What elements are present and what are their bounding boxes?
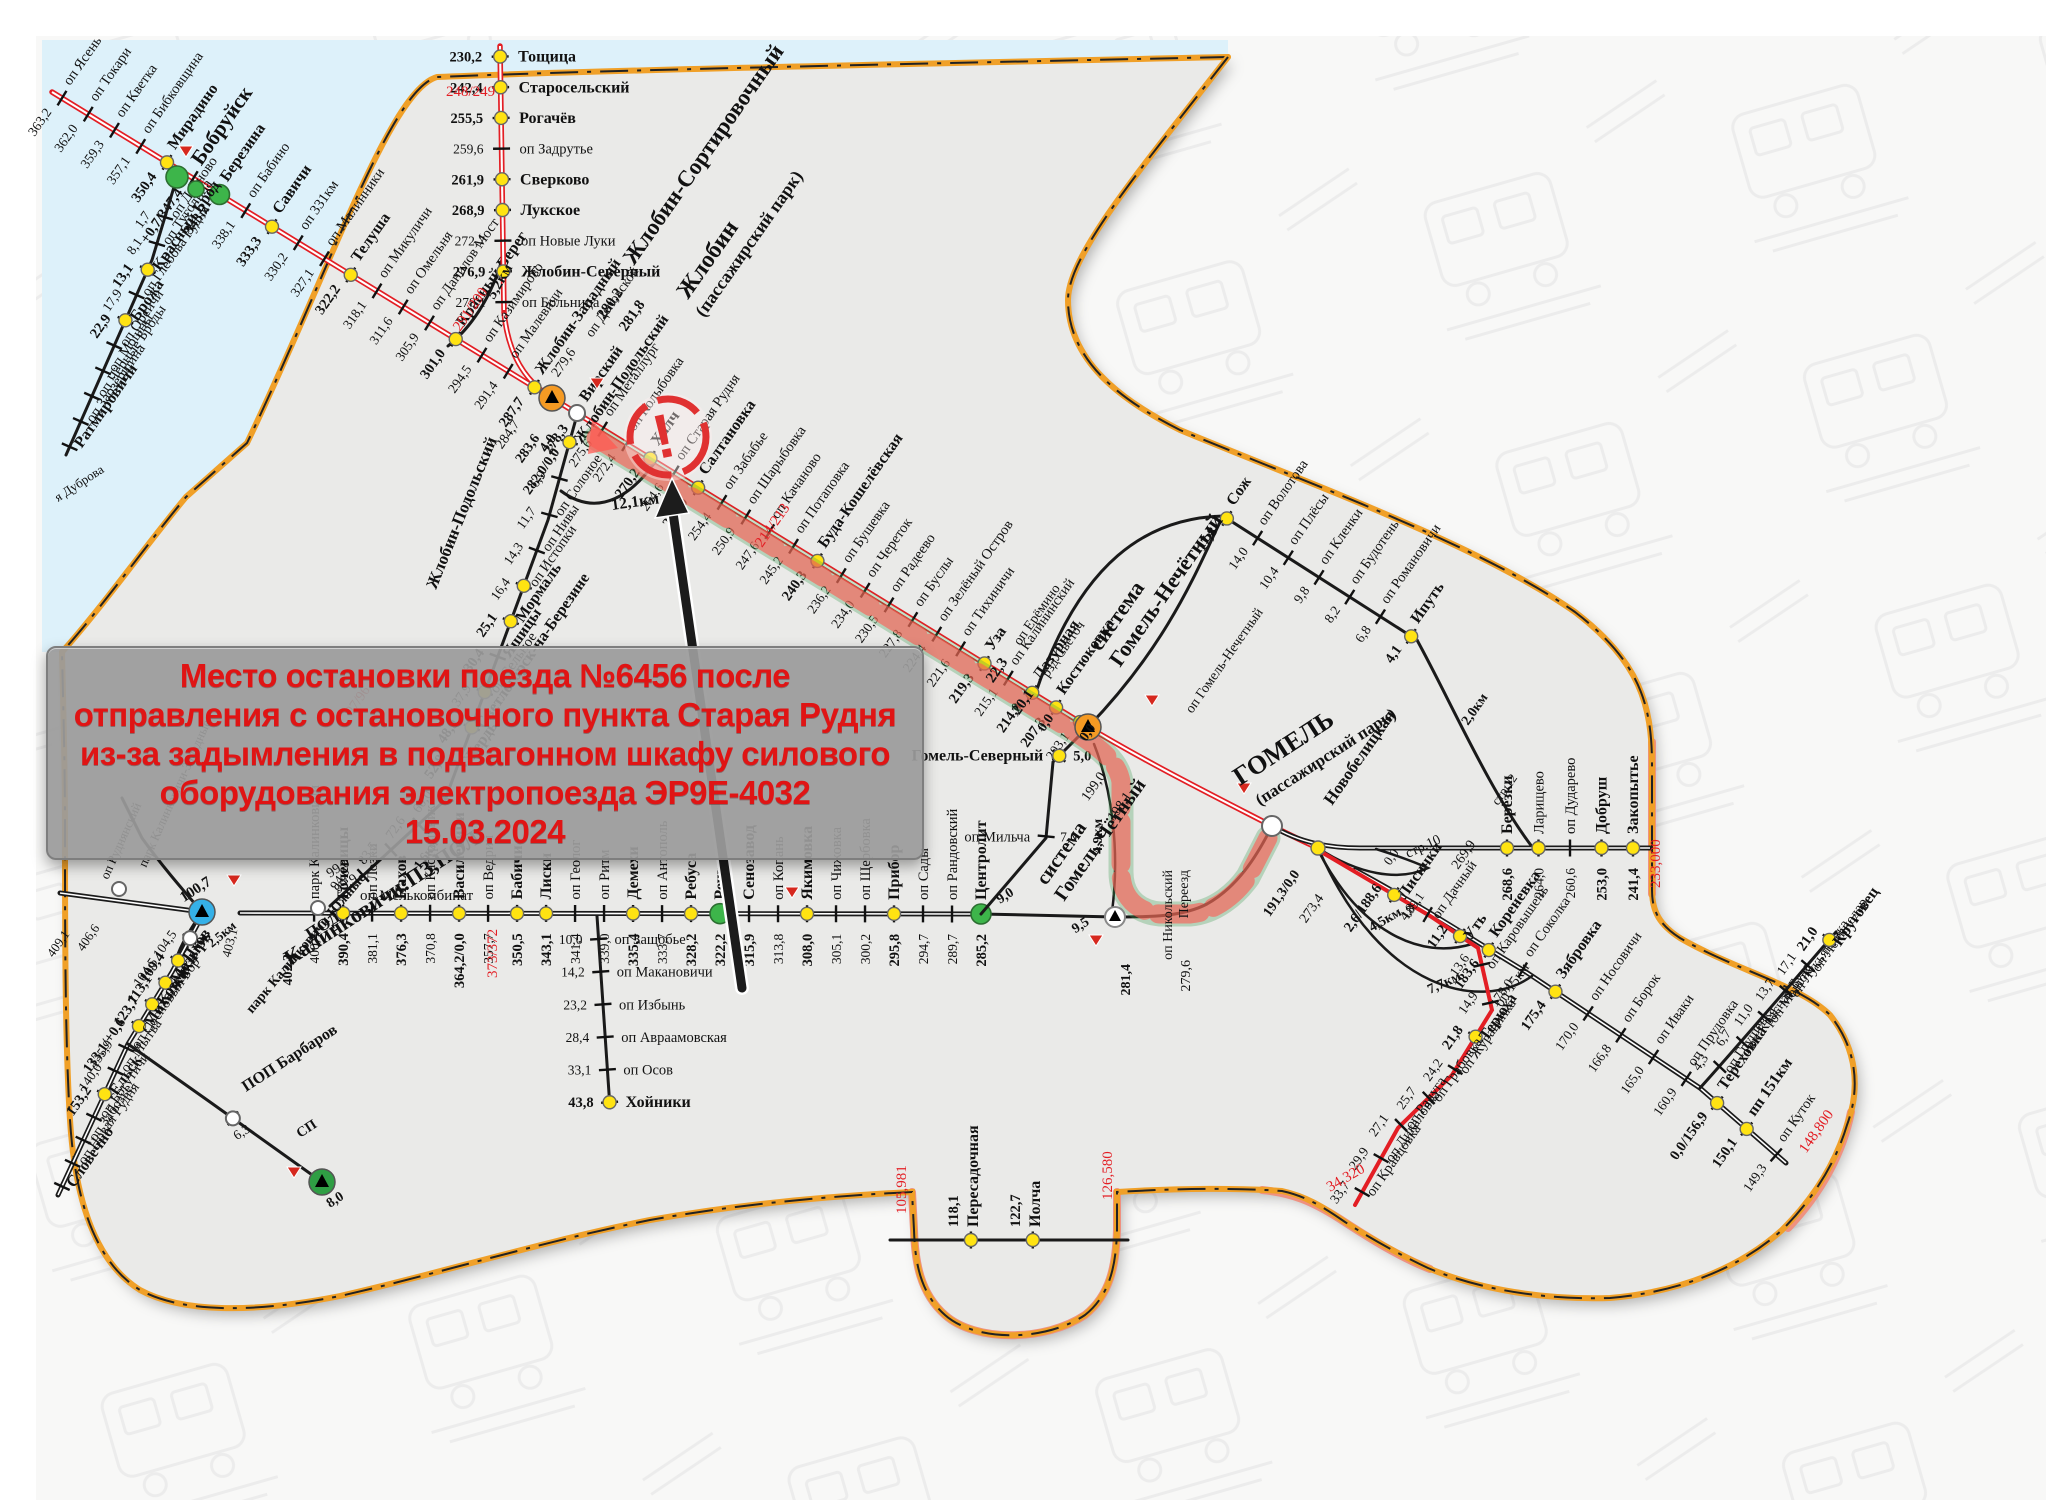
station-km: 253,0 (1595, 868, 1611, 901)
station-name: Иолча (1027, 1181, 1044, 1227)
station-name: оп Авраамовская (621, 1030, 727, 1046)
station-name: Гомель-Северный (912, 748, 1044, 765)
station-km: 300,2 (858, 934, 873, 964)
station-km: 122,7 (1008, 1194, 1024, 1227)
station-km: 285,2 (974, 934, 990, 967)
station-km: 272,7 (455, 234, 486, 249)
map-label: 233,000 (1648, 839, 1664, 888)
station-name: оп Дударево (1563, 758, 1579, 834)
annotation-line-1: Место остановки поезда №6456 после (180, 656, 790, 695)
station-name: оп Макановичи (617, 965, 713, 981)
station-km: 14,2 (561, 965, 585, 980)
station-km: 370,8 (423, 933, 438, 964)
station-km: 289,7 (945, 934, 960, 965)
annotation-line-3: из-за задымления в подвагонном шкафу сил… (80, 734, 890, 773)
station-km: 10,0 (559, 932, 583, 947)
station-km: 261,9 (451, 172, 484, 188)
map-label: 281,4 (1119, 964, 1134, 996)
station-name: Лукское (520, 202, 580, 219)
map-label: 4,9км (1091, 818, 1106, 854)
station-km: 364,2/0,0 (452, 933, 468, 988)
station-km: 255,5 (450, 111, 483, 127)
station-km: 259,6 (453, 142, 484, 157)
station-km: 260,6 (1563, 868, 1578, 899)
station-km: 305,1 (829, 934, 844, 964)
station-name: оп Больница (522, 295, 600, 311)
station-km: 230,2 (450, 50, 483, 66)
map-label: 373/372 (485, 929, 501, 978)
map-label: 279,6 (1179, 960, 1194, 992)
station-km: 241,4 (1626, 868, 1642, 901)
station-km: 308,0 (800, 934, 816, 967)
station-name: Закопытье (1625, 755, 1642, 834)
station-name: Рогачёв (519, 110, 576, 127)
station-km: 295,8 (887, 934, 903, 967)
station-km: 33,1 (568, 1063, 592, 1078)
map-label: 126,580 (1100, 1151, 1116, 1200)
map-label: оп Мелькомбинат (360, 888, 474, 904)
station-km: 343,1 (539, 933, 555, 966)
station-km: 313,8 (771, 933, 786, 964)
station-name: оп Защобье (615, 932, 686, 948)
station-name: оп Задрутье (520, 142, 593, 158)
station-km: 376,3 (394, 933, 410, 966)
station-km: 276,9 (453, 264, 486, 280)
map-label: Переезд (1177, 870, 1192, 918)
station-km: 294,7 (916, 934, 931, 965)
station-km: 43,8 (568, 1095, 593, 1111)
annotation-line-2: отправления с остановочного пункта Стара… (74, 695, 896, 734)
station-km: 381,1 (365, 933, 380, 963)
station-km: 23,2 (563, 997, 587, 1012)
annotation-line-4: оборудования электропоезда ЭР9Е-4032 (160, 773, 811, 812)
station-name: оп Избынь (619, 997, 686, 1013)
station-name: Ларищево (1532, 771, 1548, 834)
station-name: Сверково (520, 171, 589, 188)
station-name: оп Осов (623, 1063, 673, 1079)
station-km: 322,2 (713, 934, 729, 967)
map-label: 248/249 (446, 84, 495, 100)
station-name: оп Мильча (964, 829, 1030, 845)
station-km: 328,2 (684, 934, 700, 967)
station-km: 350,5 (510, 933, 526, 966)
station-name: Пересадочная (965, 1125, 982, 1227)
railway-scheme-map: оп Ясень363,2оп Токари362,0оп Кветка359,… (0, 0, 2046, 1500)
station-km: 268,9 (452, 203, 485, 219)
station-name: оп Рандовский (945, 808, 961, 900)
station-name: оп Новые Луки (521, 234, 616, 250)
station-name: Хойники (626, 1094, 691, 1111)
station-name: Добруш (1594, 776, 1611, 834)
station-name: Старосельский (519, 79, 630, 96)
annotation-line-5: 15.03.2024 (405, 812, 565, 851)
station-name: Тощица (518, 49, 576, 66)
map-label: 105,981 (894, 1165, 910, 1214)
station-km: 28,4 (566, 1030, 590, 1045)
map-label: оп Никольский (1161, 869, 1176, 959)
station-km: 118,1 (946, 1195, 962, 1227)
incident-annotation-box: Место остановки поезда №6456 после отпра… (46, 646, 924, 860)
